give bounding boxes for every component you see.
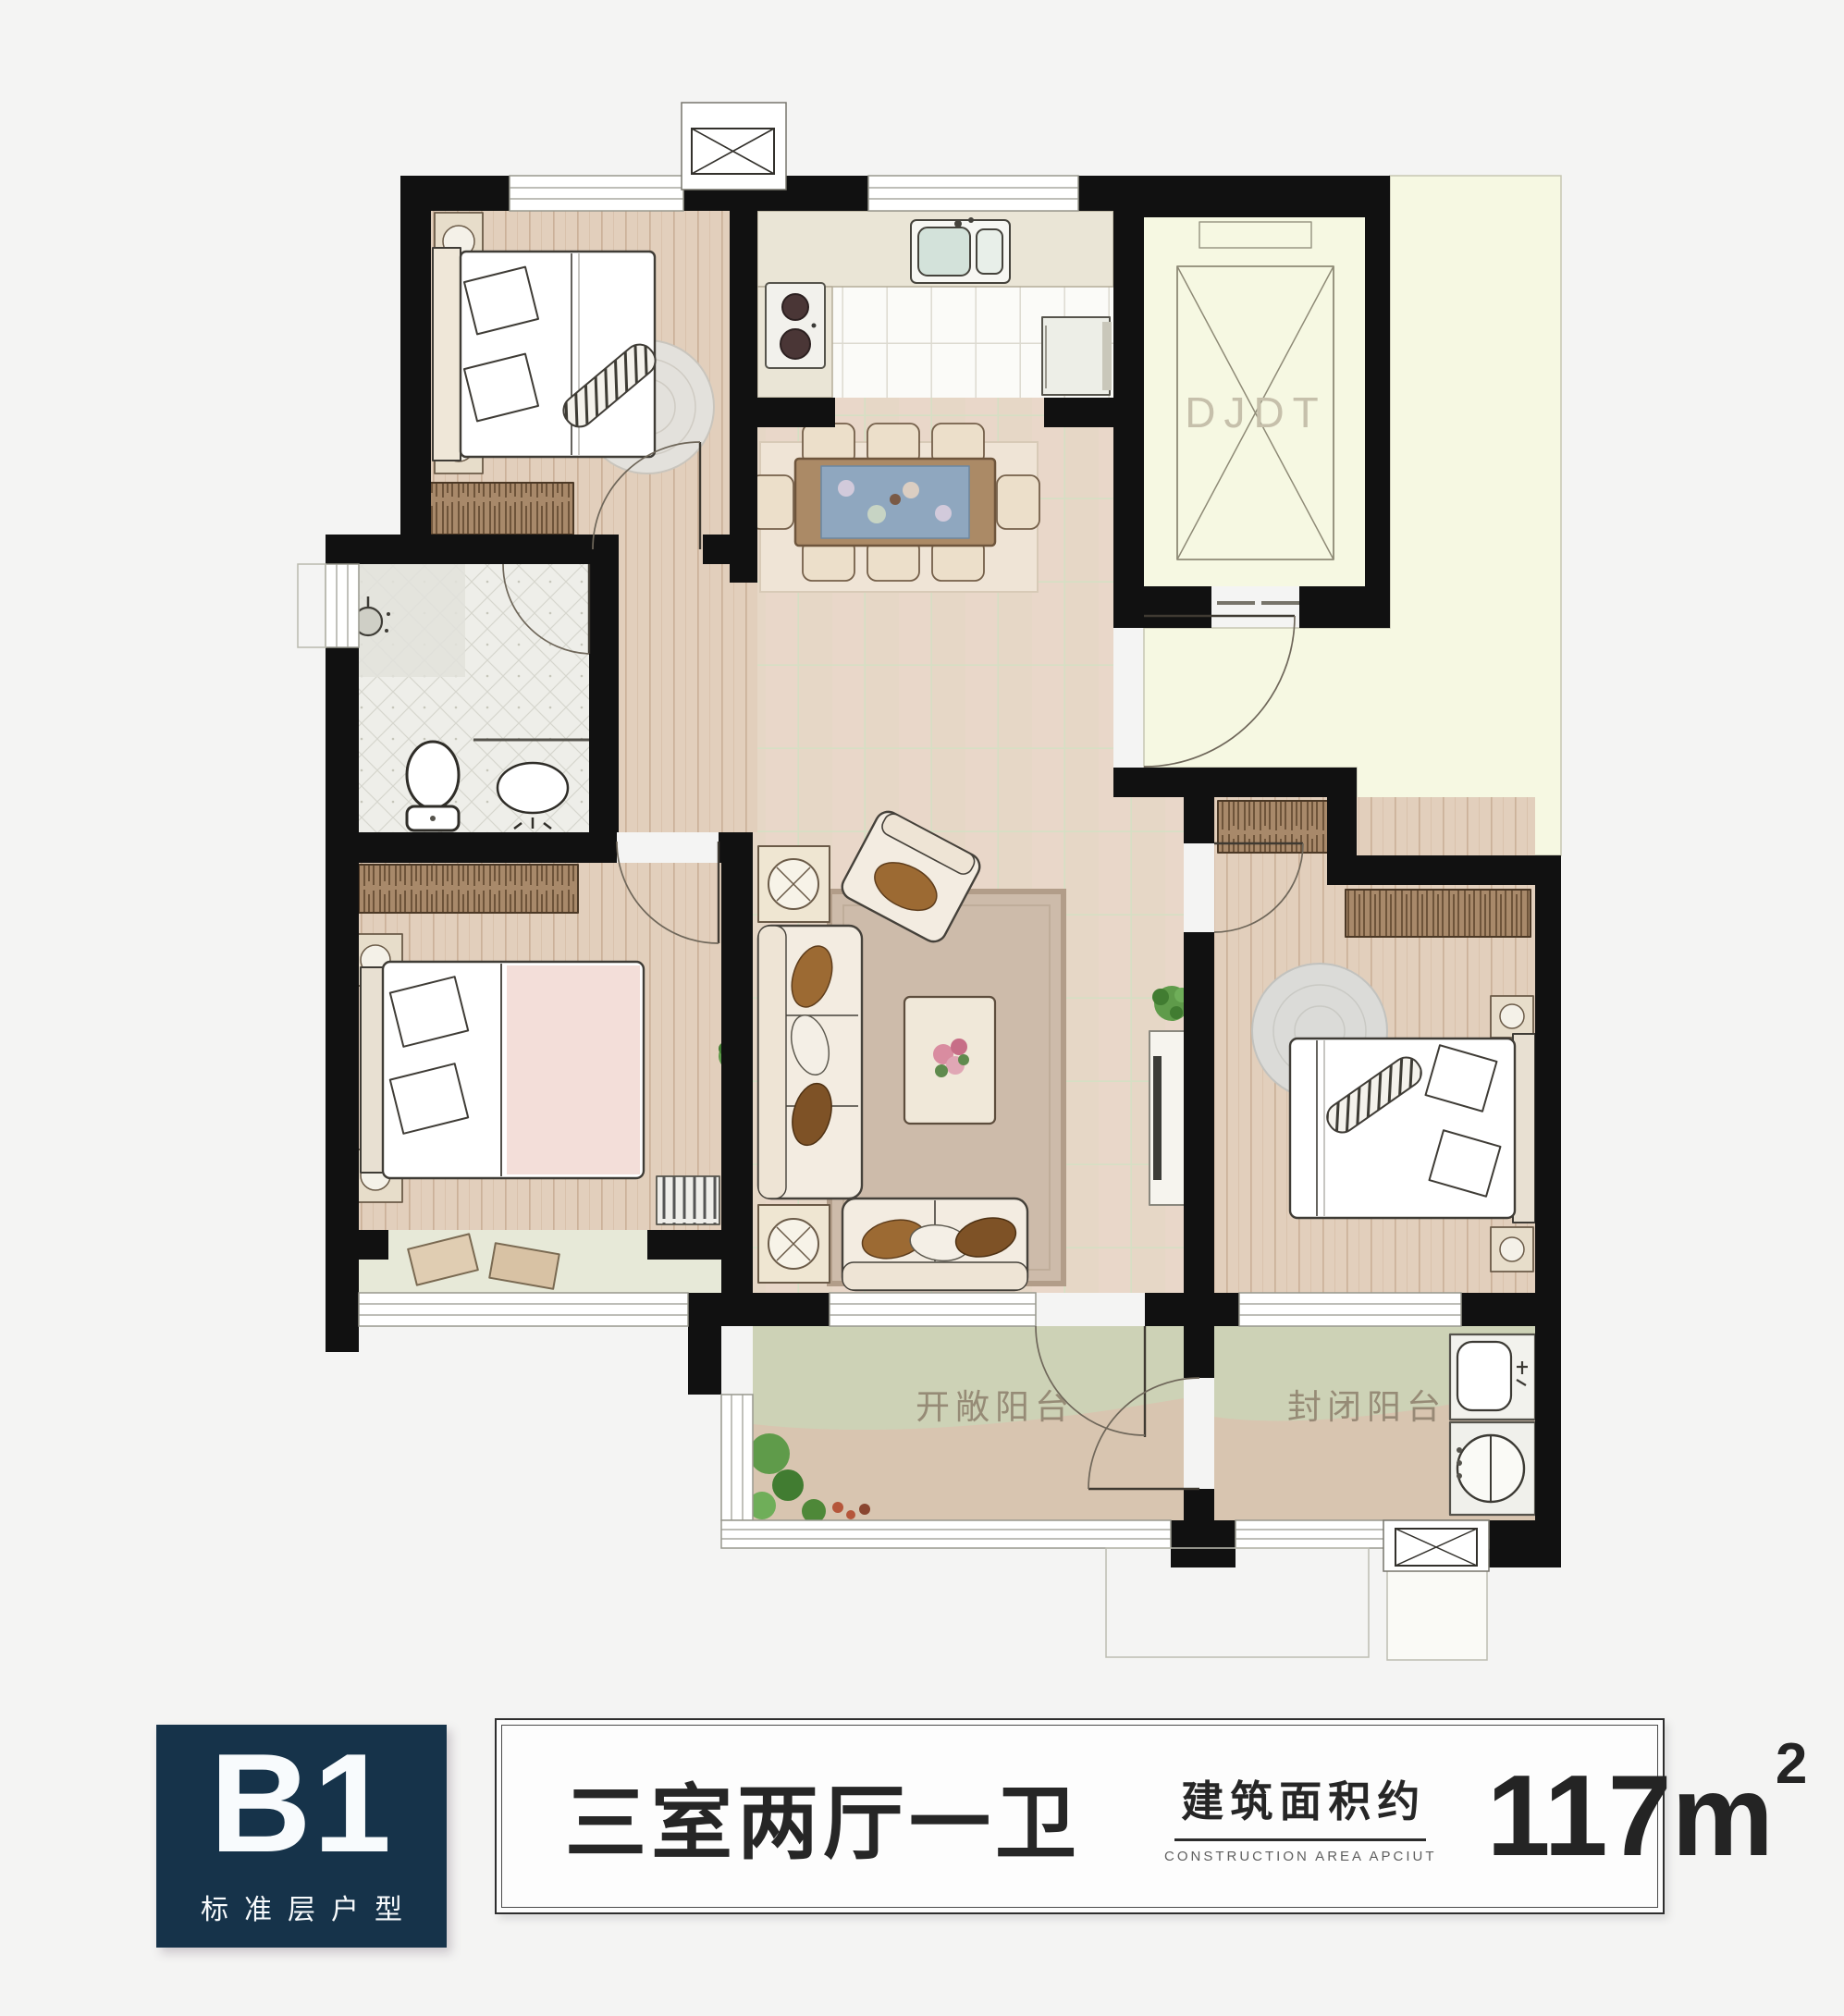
unit-code: B1: [210, 1733, 393, 1874]
toilet-bowl: [407, 742, 459, 808]
area-value: 117m2: [1487, 1759, 1806, 1874]
dresser: [425, 483, 573, 535]
elevator-panel: [1199, 222, 1311, 248]
bed-headboard: [361, 967, 383, 1173]
wardrobe: [1346, 890, 1531, 937]
area-unit: m: [1672, 1752, 1774, 1880]
bed-headboard: [1513, 1034, 1535, 1223]
tv: [1153, 1056, 1162, 1180]
window: [830, 1293, 1036, 1326]
unit-type-badge: B1 标准层户型: [156, 1725, 447, 1948]
open-balcony-label: 开敞阳台: [916, 1388, 1075, 1426]
window: [1239, 1293, 1461, 1326]
window: [868, 176, 1078, 211]
sofa: [758, 926, 862, 1199]
window-outer-sill: [298, 564, 326, 647]
area-label-en: CONSTRUCTION AREA APCIUT: [1164, 1849, 1437, 1864]
bed-blanket: [507, 965, 640, 1174]
area-number: 117: [1487, 1752, 1672, 1880]
area-label-block: 建筑面积约 CONSTRUCTION AREA APCIUT: [1164, 1768, 1437, 1864]
window: [326, 564, 359, 647]
balcony-railing-left: [721, 1395, 753, 1520]
area-label-cn: 建筑面积约: [1174, 1768, 1426, 1841]
floorplan-page: DJDT 开敞阳台 封闭阳台 B1 标准层户型 三室两厅一卫 建筑面积约 CON…: [0, 0, 1844, 2016]
loveseat: [842, 1199, 1027, 1290]
burner: [782, 294, 808, 320]
bathroom-sink: [498, 763, 568, 813]
unit-info-box: 三室两厅一卫 建筑面积约 CONSTRUCTION AREA APCIUT 11…: [495, 1718, 1665, 1914]
washing-machine: [1450, 1422, 1535, 1515]
elevator-label: DJDT: [1185, 388, 1327, 436]
floor-plan: DJDT 开敞阳台 封闭阳台: [0, 0, 1844, 2016]
enclosed-balcony-label: 封闭阳台: [1287, 1388, 1446, 1426]
dining-chair: [997, 475, 1039, 529]
bed-headboard: [433, 248, 461, 461]
laundry-sink: [1450, 1334, 1535, 1420]
unit-info-inner: 三室两厅一卫 建筑面积约 CONSTRUCTION AREA APCIUT 11…: [501, 1725, 1658, 1908]
ac-unit-box-top: [682, 103, 786, 190]
burner: [781, 329, 810, 359]
unit-layout-text: 三室两厅一卫: [565, 1758, 1081, 1875]
window: [510, 176, 683, 211]
fridge: [1042, 317, 1110, 395]
radiator: [657, 1176, 719, 1224]
wardrobe: [359, 865, 578, 913]
area-superscript: 2: [1776, 1732, 1807, 1796]
bay-window-sill: [359, 1293, 688, 1326]
balcony-railing-bottom: [721, 1520, 1171, 1548]
wardrobe: [1218, 801, 1329, 853]
unit-code-subtitle: 标准层户型: [185, 1887, 418, 1927]
fridge-handle: [1102, 322, 1112, 390]
